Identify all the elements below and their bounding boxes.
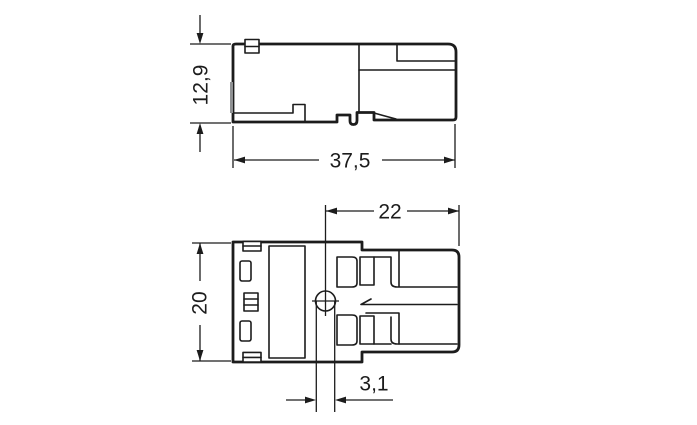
arrowhead-down: [197, 33, 204, 44]
vent-grid-lines: [244, 299, 258, 305]
release-slot: [361, 299, 457, 344]
conductor-channel-upper: [374, 251, 457, 287]
arrowhead-left: [335, 397, 346, 404]
latch-wedge: [374, 113, 396, 119]
dim-label-side-height: 12,9: [190, 65, 213, 106]
blade-slot-lines: [359, 45, 455, 70]
dim-side-width: 37,5: [233, 124, 455, 173]
coding-recess-upper: [240, 261, 251, 281]
arrowhead-left: [234, 157, 245, 164]
dim-hole-offset: 3,1: [286, 301, 393, 412]
arrowhead-left: [326, 208, 337, 215]
arrowhead-right: [444, 157, 455, 164]
side-view: [232, 40, 457, 125]
dim-side-height: 12,9: [190, 15, 232, 152]
conductor-channel-lower: [374, 317, 457, 344]
dim-label-plan-height: 20: [189, 291, 212, 314]
arrowhead-down: [197, 350, 204, 361]
dim-plan-width: 22: [326, 201, 460, 317]
marking-window: [269, 246, 305, 358]
drawing-page: 12,9 37,5: [0, 0, 697, 425]
plan-view: [233, 241, 459, 362]
arrowhead-up: [197, 243, 204, 254]
dim-label-plan-width: 22: [378, 201, 401, 224]
pushbutton-upper: [360, 257, 374, 285]
technical-drawing: 12,9 37,5: [0, 0, 697, 425]
tangent-extension-lines: [316, 301, 334, 412]
arrowhead-up: [197, 123, 204, 134]
dim-plan-height: 20: [189, 243, 232, 361]
vent-grid: [244, 293, 258, 311]
coding-recess-lower: [240, 321, 251, 341]
dim-label-hole-offset: 3,1: [359, 373, 388, 396]
dim-label-side-width: 37,5: [330, 150, 371, 173]
inner-bottom-wall: [234, 105, 305, 122]
arrowhead-right: [305, 397, 316, 404]
pushbutton-lower: [360, 316, 374, 344]
arrowhead-right: [448, 208, 459, 215]
